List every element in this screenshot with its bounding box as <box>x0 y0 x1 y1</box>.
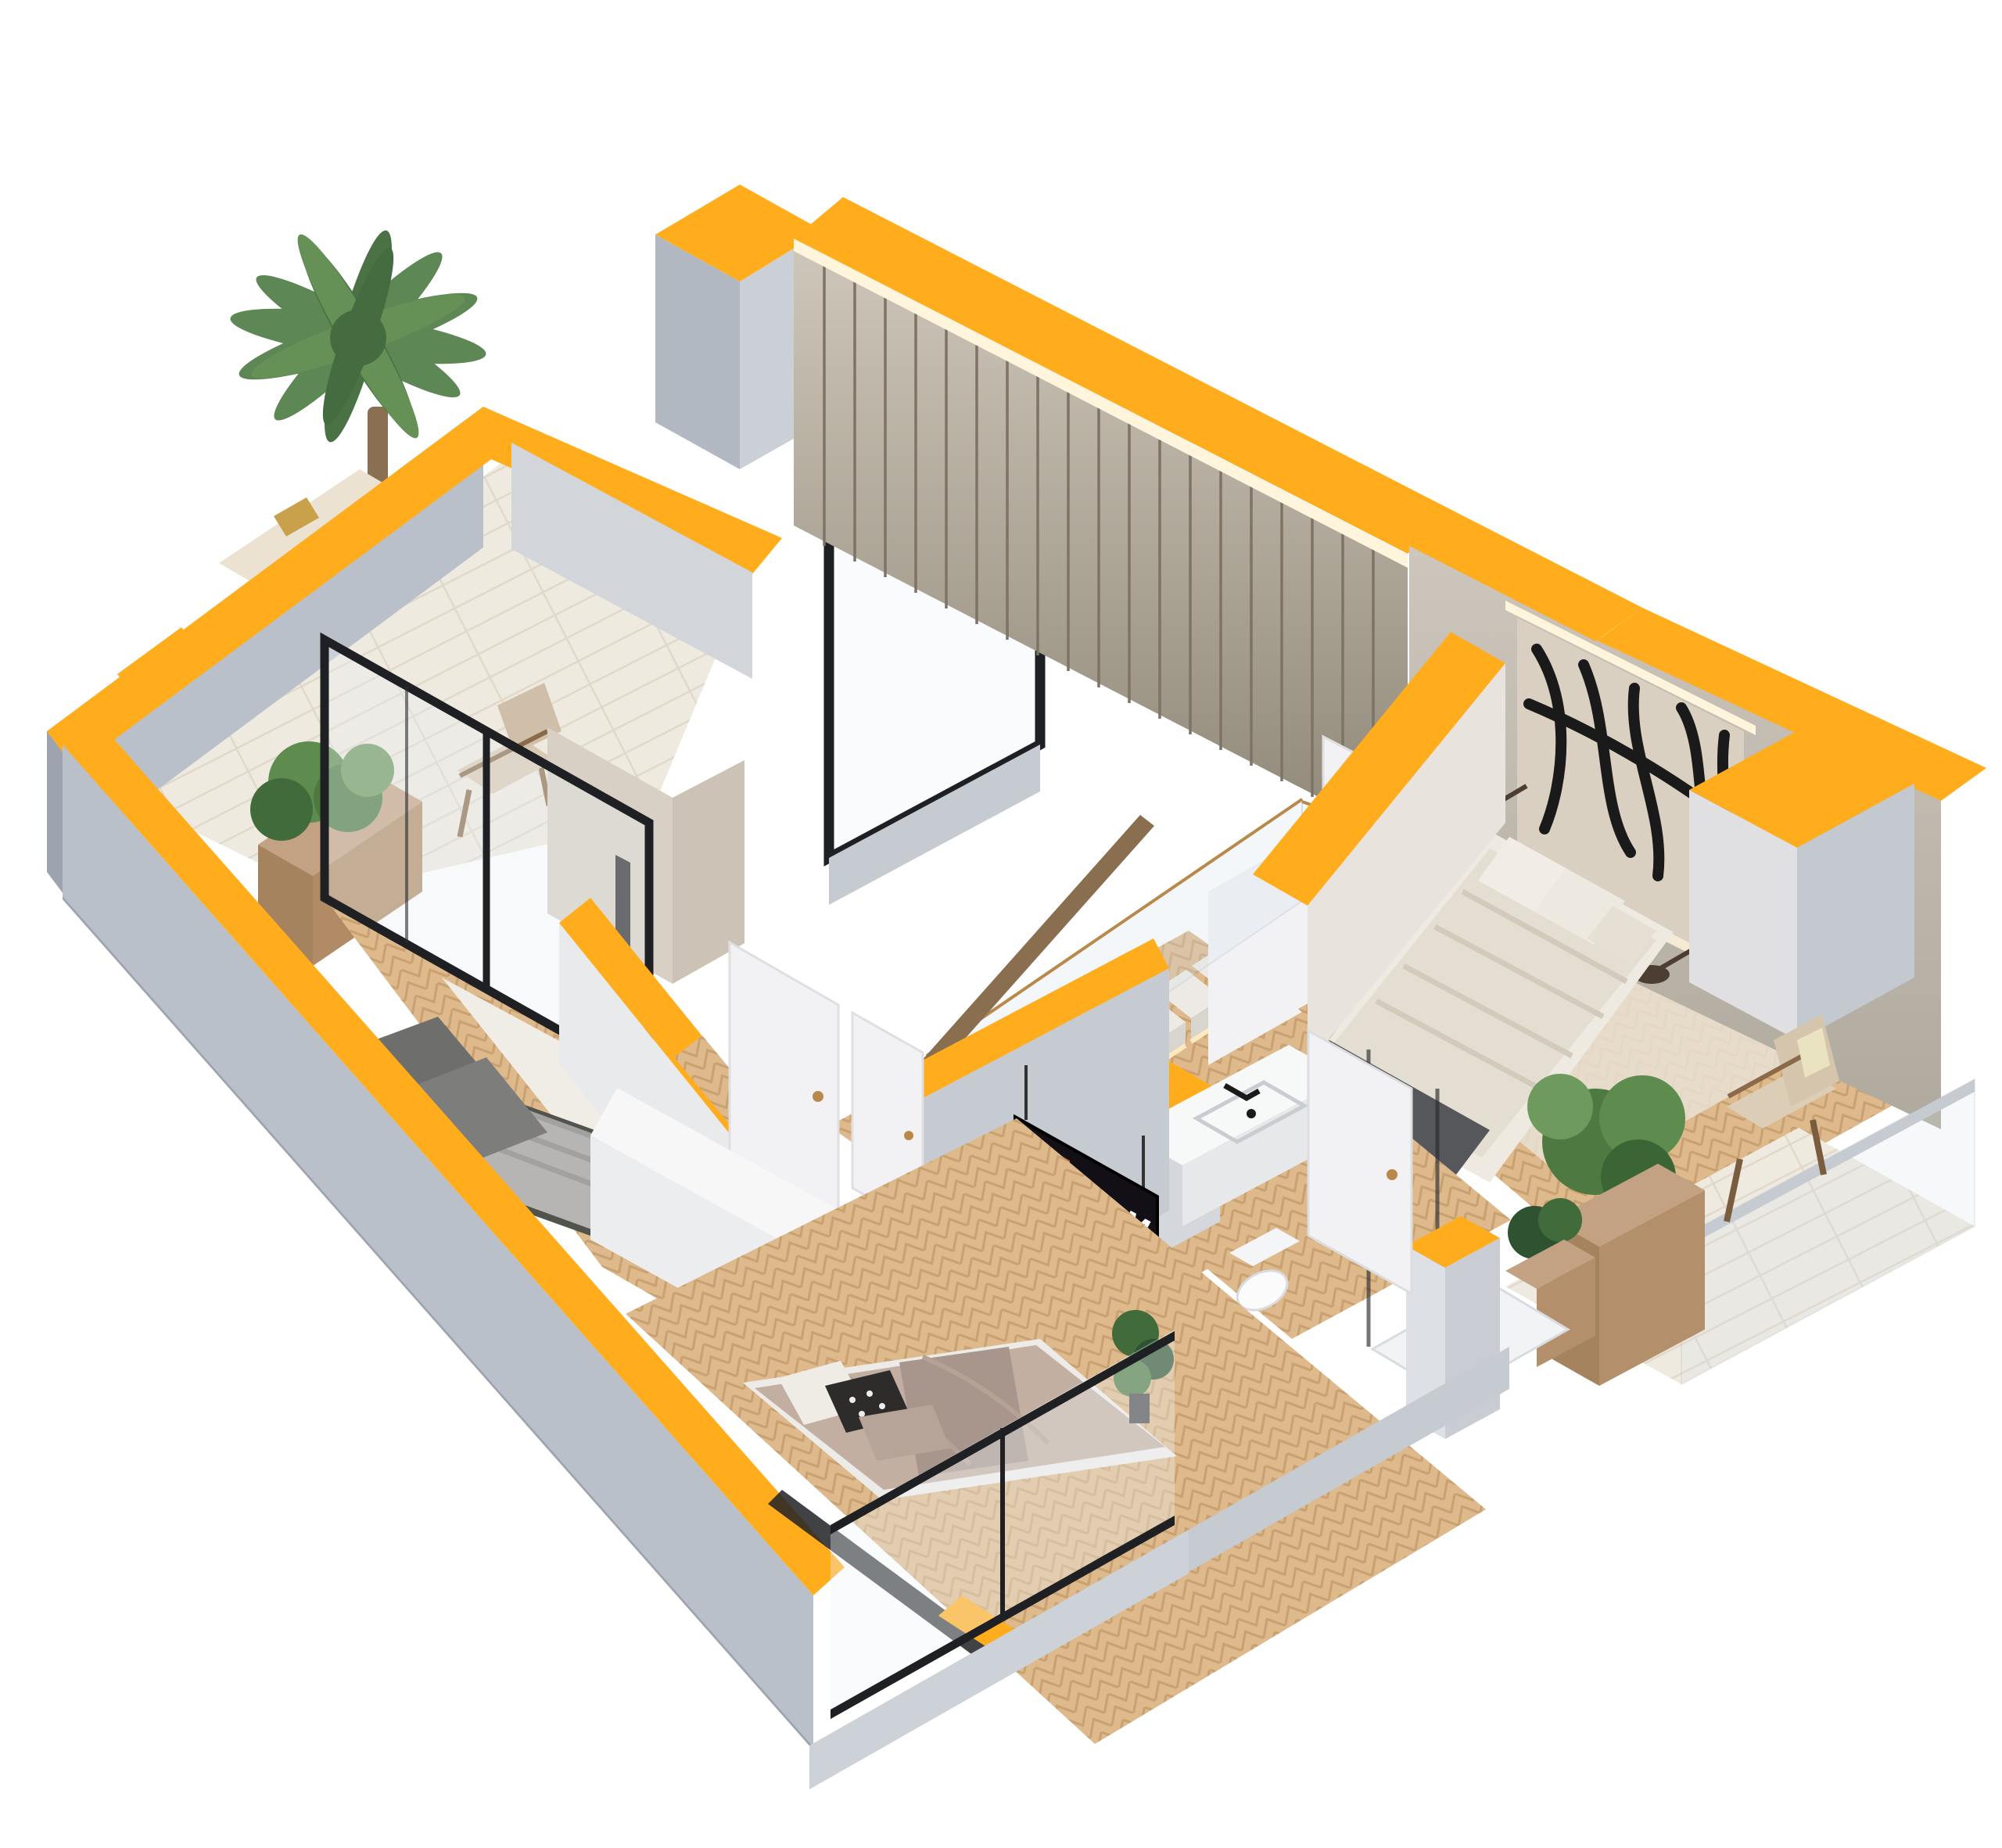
isometric-scene: Music <box>0 0 2002 1848</box>
hall-door-1-handle <box>813 1091 823 1102</box>
hall-door-2-handle <box>904 1131 913 1140</box>
basin-drain <box>1247 1109 1256 1118</box>
floorplan-render: Music <box>0 0 2002 1848</box>
bathroom-door-handle <box>1387 1169 1397 1180</box>
